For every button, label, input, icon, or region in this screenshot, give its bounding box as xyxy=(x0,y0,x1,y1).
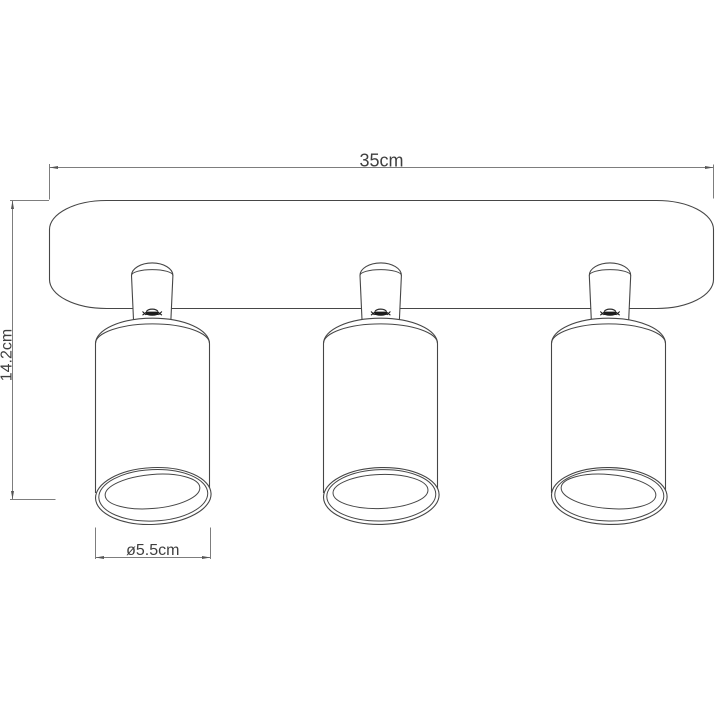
svg-text:35cm: 35cm xyxy=(359,151,403,171)
svg-text:ø5.5cm: ø5.5cm xyxy=(126,542,179,559)
svg-text:14.2cm: 14.2cm xyxy=(0,329,16,381)
